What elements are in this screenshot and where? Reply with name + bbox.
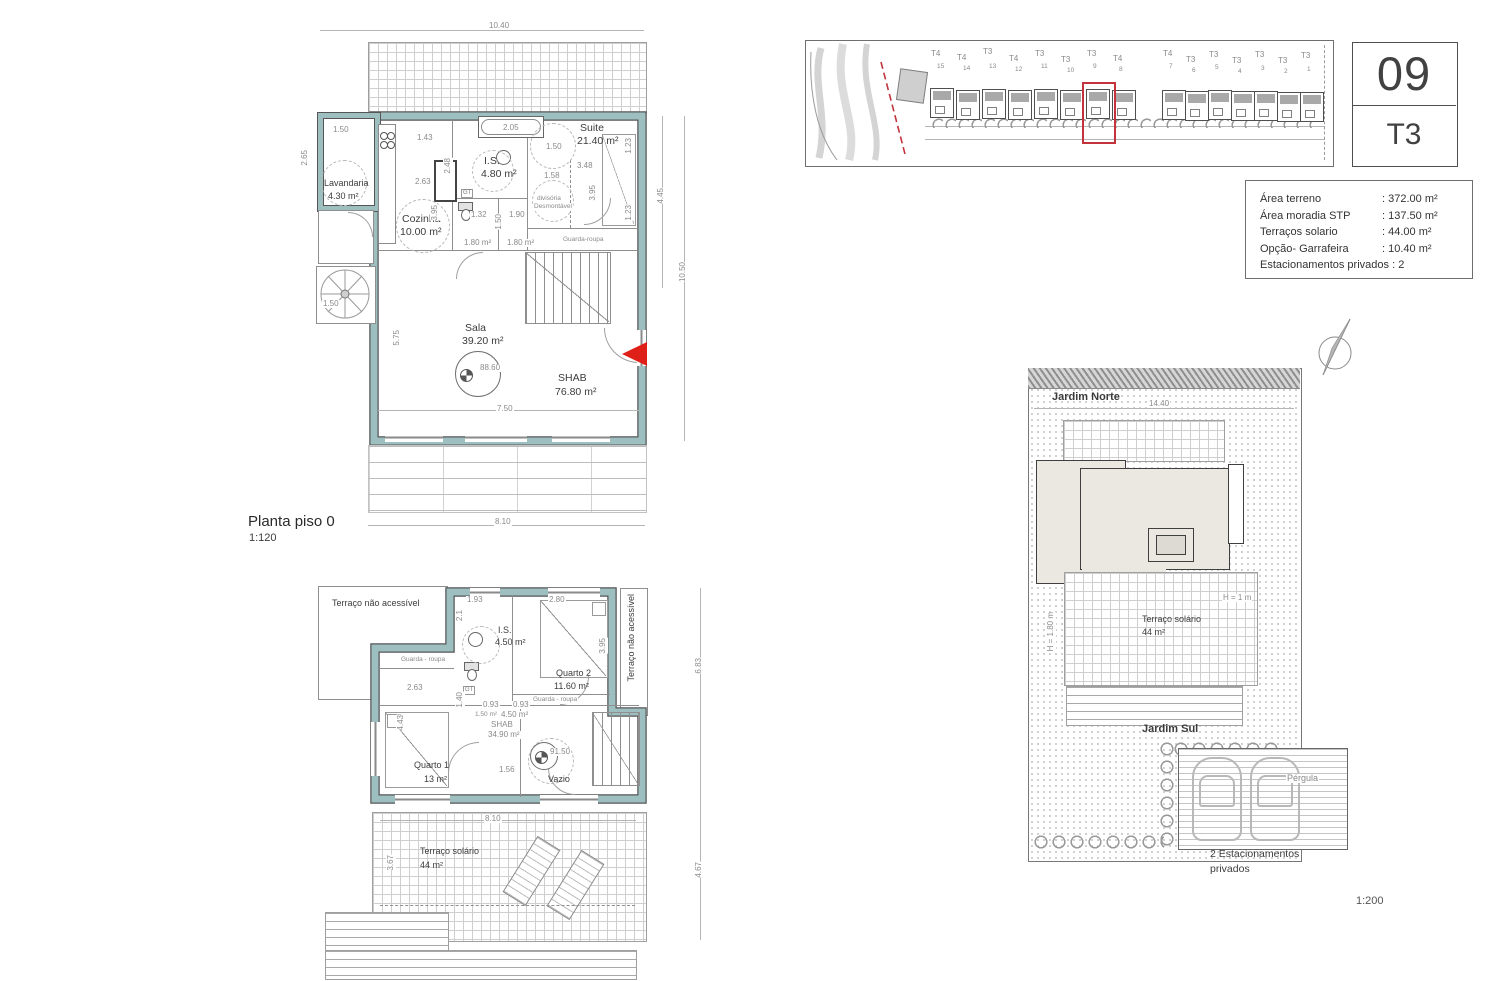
wall-height-label-2: H = 1 m bbox=[1222, 594, 1252, 602]
info-row: Estacionamentos privados : 2 bbox=[1260, 257, 1472, 274]
dim: 1.58 bbox=[543, 172, 561, 180]
info-label: Estacionamentos privados bbox=[1260, 259, 1389, 271]
dim-line bbox=[380, 820, 636, 821]
dim: 7.50 bbox=[496, 405, 514, 413]
terraco-solario-area: 44 m² bbox=[420, 860, 443, 872]
site-lot-type: T4 bbox=[1112, 55, 1123, 63]
partition bbox=[379, 668, 454, 669]
north-arrow-icon bbox=[1310, 315, 1362, 379]
dim: 1.23 bbox=[624, 138, 634, 154]
site-lot-house bbox=[956, 90, 980, 120]
jardim-sul-label: Jardim Sul bbox=[1142, 722, 1198, 736]
info-row: Terraços solario: 44.00 m² bbox=[1260, 224, 1472, 241]
dim-width-total: 10.40 bbox=[488, 22, 510, 30]
info-row: Opção- Garrafeira: 10.40 m² bbox=[1260, 241, 1472, 258]
dim: 3.67 bbox=[386, 855, 396, 871]
highlighted-lot-box bbox=[1082, 82, 1116, 144]
dim: 4.45 bbox=[656, 188, 666, 204]
site-lot-type: T4 bbox=[1162, 50, 1173, 58]
site-lot-number: 6 bbox=[1191, 68, 1197, 75]
small-area-2: 4.50 m² bbox=[500, 711, 529, 719]
dashed-line bbox=[380, 905, 635, 906]
level-value: 91.50 bbox=[549, 748, 571, 756]
dim: 1.93 bbox=[466, 596, 484, 604]
unit-number: 09 bbox=[1352, 42, 1456, 104]
dim: 3.95 bbox=[430, 205, 440, 221]
room-label-quarto1: Quarto 1 bbox=[414, 760, 449, 772]
wardrobe-label-2: Guarda - roupa bbox=[532, 697, 578, 704]
info-label: Área moradia STP bbox=[1260, 208, 1382, 225]
roof-pergola-hatch bbox=[1063, 420, 1225, 462]
room-area-shab: 76.80 m² bbox=[555, 386, 596, 400]
site-lot-type: T3 bbox=[1277, 57, 1288, 65]
window bbox=[371, 722, 380, 776]
dim: 1.40 bbox=[455, 692, 465, 708]
site-lot-type: T3 bbox=[1231, 57, 1242, 65]
site-lot-house bbox=[982, 89, 1006, 119]
dim: 2.65 bbox=[300, 150, 310, 166]
car bbox=[1250, 757, 1300, 841]
dim: 2.63 bbox=[406, 684, 424, 692]
dim: 10.50 bbox=[678, 262, 688, 282]
window bbox=[465, 433, 527, 442]
site-terrain bbox=[807, 42, 932, 163]
drawing-sheet: 10.40 88.60 bbox=[0, 0, 1500, 981]
site-lot-type: T3 bbox=[1086, 50, 1097, 58]
site-lot-number: 4 bbox=[1237, 69, 1243, 76]
unit-typology: T3 bbox=[1352, 106, 1456, 164]
site-lot-type: T3 bbox=[1300, 52, 1311, 60]
site-lot-house bbox=[1208, 90, 1232, 120]
site-lot-type: T3 bbox=[1185, 56, 1196, 64]
partition bbox=[527, 119, 528, 250]
room-area-lavandaria: 4.30 m² bbox=[328, 191, 359, 203]
site-lot-number: 1 bbox=[1306, 67, 1312, 74]
info-label: Área terreno bbox=[1260, 191, 1382, 208]
dim: 1.50 bbox=[545, 143, 563, 151]
level-marker bbox=[455, 351, 501, 397]
site-lot-house bbox=[1231, 91, 1255, 121]
dim: 1.50 bbox=[322, 300, 340, 308]
window bbox=[385, 433, 443, 442]
dim-line bbox=[1034, 408, 1294, 409]
hedge-bottom bbox=[1032, 833, 1164, 853]
site-lot-number: 5 bbox=[1214, 65, 1220, 72]
site-lot-number: 9 bbox=[1092, 64, 1098, 71]
info-label: Terraços solario bbox=[1260, 224, 1382, 241]
site-lot-house bbox=[1185, 91, 1209, 121]
plan0-title: Planta piso 0 bbox=[248, 512, 335, 532]
wardrobe-label: Guarda-roupa bbox=[562, 237, 604, 244]
site-lot-type: T4 bbox=[956, 54, 967, 62]
dim: 0.93 bbox=[512, 701, 530, 709]
dim: 6.83 bbox=[694, 658, 704, 674]
window bbox=[540, 795, 598, 804]
garden-steps bbox=[1066, 686, 1243, 726]
skylight-inner bbox=[1156, 535, 1186, 555]
site-lot-type: T4 bbox=[930, 50, 941, 58]
garden-terraco-area: 44 m² bbox=[1142, 627, 1165, 639]
room-label-sala: Sala bbox=[465, 322, 486, 336]
car bbox=[1192, 757, 1242, 841]
info-value: 44.00 m² bbox=[1388, 226, 1431, 238]
room-area-is1: 4.50 m² bbox=[495, 637, 526, 649]
dim: 1.43 bbox=[416, 134, 434, 142]
room-area-quarto1: 13 m² bbox=[424, 774, 447, 786]
wood-deck bbox=[368, 445, 647, 513]
jardim-norte-label: Jardim Norte bbox=[1052, 390, 1120, 404]
dim-line-top bbox=[320, 30, 644, 31]
gt-box: GT bbox=[461, 189, 473, 198]
site-lot-house bbox=[1060, 90, 1084, 120]
room-area-shab1: 34.90 m² bbox=[487, 731, 521, 739]
north-hedge-band bbox=[1028, 368, 1300, 389]
site-lot-house bbox=[1008, 90, 1032, 120]
site-lot-number: 13 bbox=[988, 64, 997, 71]
dim: 2.1 bbox=[455, 610, 465, 621]
dim: 2.05 bbox=[502, 124, 520, 132]
room-area-cozinha: 10.00 m² bbox=[400, 226, 441, 240]
dim: 5.75 bbox=[392, 330, 402, 346]
site-lot-type: T4 bbox=[1008, 55, 1019, 63]
divisoria-line2: Desmontável bbox=[533, 204, 573, 211]
site-lot-house bbox=[930, 88, 954, 118]
dim: 2.48 bbox=[443, 158, 453, 174]
info-row: Área terreno: 372.00 m² bbox=[1260, 191, 1472, 208]
dim: 8.10 bbox=[484, 815, 502, 823]
room-label-quarto2: Quarto 2 bbox=[556, 668, 591, 680]
site-existing-building bbox=[896, 68, 928, 104]
info-value: 137.50 m² bbox=[1388, 210, 1438, 222]
dim: 3.48 bbox=[576, 162, 594, 170]
dim-line bbox=[700, 588, 701, 940]
info-row: Área moradia STP: 137.50 m² bbox=[1260, 208, 1472, 225]
info-table: Área terreno: 372.00 m² Área moradia STP… bbox=[1245, 180, 1473, 279]
steps bbox=[325, 912, 449, 954]
level-value: 88.60 bbox=[479, 364, 501, 372]
divisoria-line1: divisória bbox=[536, 196, 562, 203]
site-road-dashed bbox=[1324, 45, 1325, 160]
site-lot-house bbox=[1277, 92, 1301, 122]
site-lot-number: 3 bbox=[1260, 66, 1266, 73]
site-lot-number: 7 bbox=[1168, 64, 1174, 71]
dim: 4.43 bbox=[396, 715, 406, 731]
dim: 1.32 bbox=[470, 211, 488, 219]
dim: 1.56 bbox=[498, 766, 516, 774]
site-lot-number: 15 bbox=[936, 64, 945, 71]
dim: 1.50 bbox=[332, 126, 350, 134]
burner bbox=[387, 132, 395, 140]
site-lot-number: 11 bbox=[1040, 64, 1049, 71]
site-lot-house bbox=[1162, 90, 1186, 120]
info-value: 2 bbox=[1398, 259, 1404, 271]
room-area-is: 4.80 m² bbox=[481, 168, 517, 182]
hall-area-2: 1.80 m² bbox=[506, 239, 535, 247]
dim: 1.90 bbox=[508, 211, 526, 219]
partition bbox=[379, 705, 639, 706]
room-label-is: I.S. bbox=[484, 155, 500, 169]
room-label-lavandaria: Lavandaria bbox=[324, 178, 369, 190]
site-lot-number: 14 bbox=[962, 66, 971, 73]
site-lot-number: 2 bbox=[1283, 69, 1289, 76]
plan0-scale: 1:120 bbox=[249, 531, 277, 545]
room-label-is1: I.S. bbox=[498, 625, 512, 637]
site-lot-type: T3 bbox=[1208, 51, 1219, 59]
partition bbox=[512, 596, 513, 705]
hall-area: 1.80 m² bbox=[463, 239, 492, 247]
pillow bbox=[592, 602, 606, 616]
steps-wide bbox=[325, 950, 637, 980]
info-value: 372.00 m² bbox=[1388, 193, 1438, 205]
site-lot-number: 12 bbox=[1014, 67, 1023, 74]
site-lot-number: 10 bbox=[1066, 68, 1075, 75]
site-lot-house bbox=[1300, 92, 1324, 122]
wall-height-label: H = 1.80 m bbox=[1046, 612, 1056, 651]
small-area-1: 1.50 m² bbox=[474, 712, 498, 719]
site-lot-type: T3 bbox=[1254, 51, 1265, 59]
info-value: 10.40 m² bbox=[1388, 243, 1431, 255]
parking-count-line1: 2 Estacionamentos bbox=[1210, 848, 1299, 862]
room-label-vazio: Vazio bbox=[548, 774, 570, 786]
dim: 8.10 bbox=[494, 518, 512, 526]
site-lot-house bbox=[1254, 91, 1278, 121]
garden-scale: 1:200 bbox=[1356, 894, 1384, 908]
site-lot-number: 8 bbox=[1118, 67, 1124, 74]
garden-terraco-label: Terraço solário bbox=[1142, 614, 1201, 626]
site-lot-house bbox=[1034, 89, 1058, 119]
house-footprint-east-wing bbox=[1228, 464, 1244, 544]
site-lot-type: T3 bbox=[1034, 50, 1045, 58]
dim: 3.95 bbox=[598, 638, 608, 654]
room-area-quarto2: 11.60 m² bbox=[554, 681, 589, 693]
site-street-line bbox=[925, 139, 1325, 140]
partition bbox=[527, 228, 639, 229]
room-label-shab: SHAB bbox=[558, 372, 587, 386]
site-lot-type: T3 bbox=[982, 48, 993, 56]
patio-annex bbox=[318, 210, 374, 264]
room-area-sala: 39.20 m² bbox=[462, 335, 503, 349]
dim: 0.93 bbox=[482, 701, 500, 709]
wardrobe-label-1: Guarda - roupa bbox=[400, 657, 446, 664]
dim: 1.23 bbox=[624, 205, 634, 221]
room-area-suite: 21.40 m² bbox=[577, 135, 618, 149]
burner bbox=[387, 141, 395, 149]
garden-width-dim: 14.40 bbox=[1148, 400, 1170, 408]
entrance-arrow-icon bbox=[622, 342, 647, 366]
dim: 2.63 bbox=[414, 178, 432, 186]
dim: 4.67 bbox=[694, 862, 704, 878]
site-lot-type: T3 bbox=[1060, 56, 1071, 64]
pergola-label: Pérgula bbox=[1286, 774, 1319, 783]
stairs-diagonal bbox=[525, 252, 609, 322]
dim: 3.95 bbox=[588, 185, 598, 201]
room-label-shab1: SHAB bbox=[490, 721, 514, 729]
info-label: Opção- Garrafeira bbox=[1260, 241, 1382, 258]
spiral-stair bbox=[318, 268, 372, 320]
partition bbox=[452, 198, 528, 199]
dim: 1.50 bbox=[494, 214, 504, 230]
stairs-diagonal bbox=[592, 712, 638, 784]
parking-count-line2: privados bbox=[1210, 863, 1250, 877]
window bbox=[552, 433, 610, 442]
dim: 2.80 bbox=[548, 596, 566, 604]
room-label-suite: Suite bbox=[580, 122, 604, 136]
window bbox=[395, 795, 450, 804]
terraco-solario-label: Terraço solário bbox=[420, 846, 479, 858]
